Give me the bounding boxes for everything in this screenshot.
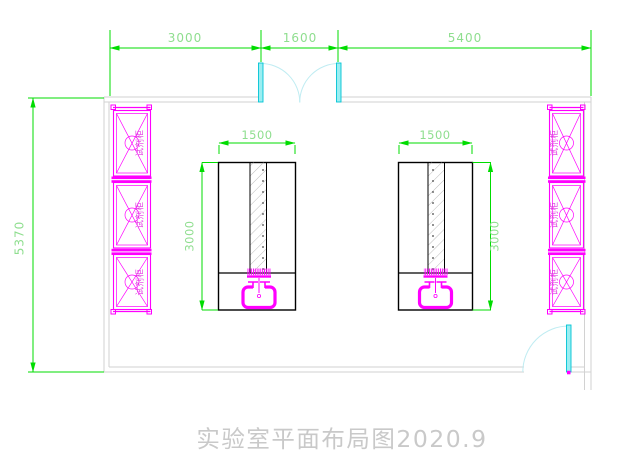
reagent-cabinet: 试剂柜	[114, 111, 151, 177]
dim-bench-width: 1500	[419, 128, 450, 142]
dim-bench-depth: 3000	[488, 220, 502, 251]
cabinet-label: 试剂柜	[549, 268, 560, 295]
reagent-cabinet: 试剂柜	[549, 183, 584, 249]
dim-top-left: 3000	[168, 31, 203, 45]
cabinet-label: 试剂柜	[135, 268, 146, 295]
cabinet-label: 试剂柜	[549, 201, 560, 228]
door-hinge	[567, 371, 571, 375]
dim-overall-height: 5370	[13, 221, 27, 256]
door-swing-arc	[261, 64, 300, 103]
single-door	[523, 325, 571, 374]
cad-floor-plan: 3000 1600 5400 5370 试剂柜	[0, 0, 619, 469]
cabinet-label: 试剂柜	[135, 129, 146, 156]
door-leaf	[337, 63, 342, 102]
bench-width-dimension: 1500	[219, 128, 295, 154]
sink-icon	[243, 269, 275, 308]
bench-depth-dimension: 3000	[473, 163, 502, 311]
bench-width-dimension: 1500	[399, 128, 472, 154]
reagent-cabinet: 试剂柜	[549, 255, 584, 310]
lab-bench-left: 1500 3000	[183, 128, 296, 310]
door-swing-arc	[523, 326, 569, 372]
cabinet-label: 试剂柜	[549, 129, 560, 156]
floor-plan-title: 实验室平面布局图2020.9	[196, 425, 487, 453]
dim-bench-depth: 3000	[183, 220, 197, 251]
lab-bench-right: 1500 3000	[399, 128, 502, 310]
reagent-cabinet: 试剂柜	[114, 255, 151, 310]
top-dimension-chain: 3000 1600 5400	[110, 30, 591, 96]
door-leaf	[259, 63, 264, 102]
bench-depth-dimension: 3000	[183, 163, 219, 311]
room-walls	[104, 97, 591, 390]
reagent-cabinet: 试剂柜	[114, 183, 151, 249]
floor-plan-drawing: 3000 1600 5400 5370 试剂柜	[0, 0, 619, 469]
door-swing-arc	[300, 64, 339, 103]
cabinet-bank-right: 试剂柜 试剂柜 试剂柜	[548, 105, 586, 314]
sink-icon	[420, 269, 452, 308]
left-overall-dimension: 5370	[13, 98, 105, 372]
double-door	[259, 63, 342, 103]
cabinet-label: 试剂柜	[135, 201, 146, 228]
dim-top-right: 5400	[448, 31, 483, 45]
cabinet-bank-left: 试剂柜 试剂柜 试剂柜	[111, 105, 152, 314]
dim-bench-width: 1500	[241, 128, 272, 142]
dim-top-middle: 1600	[283, 31, 318, 45]
reagent-cabinet: 试剂柜	[549, 111, 584, 177]
door-leaf	[567, 325, 572, 372]
